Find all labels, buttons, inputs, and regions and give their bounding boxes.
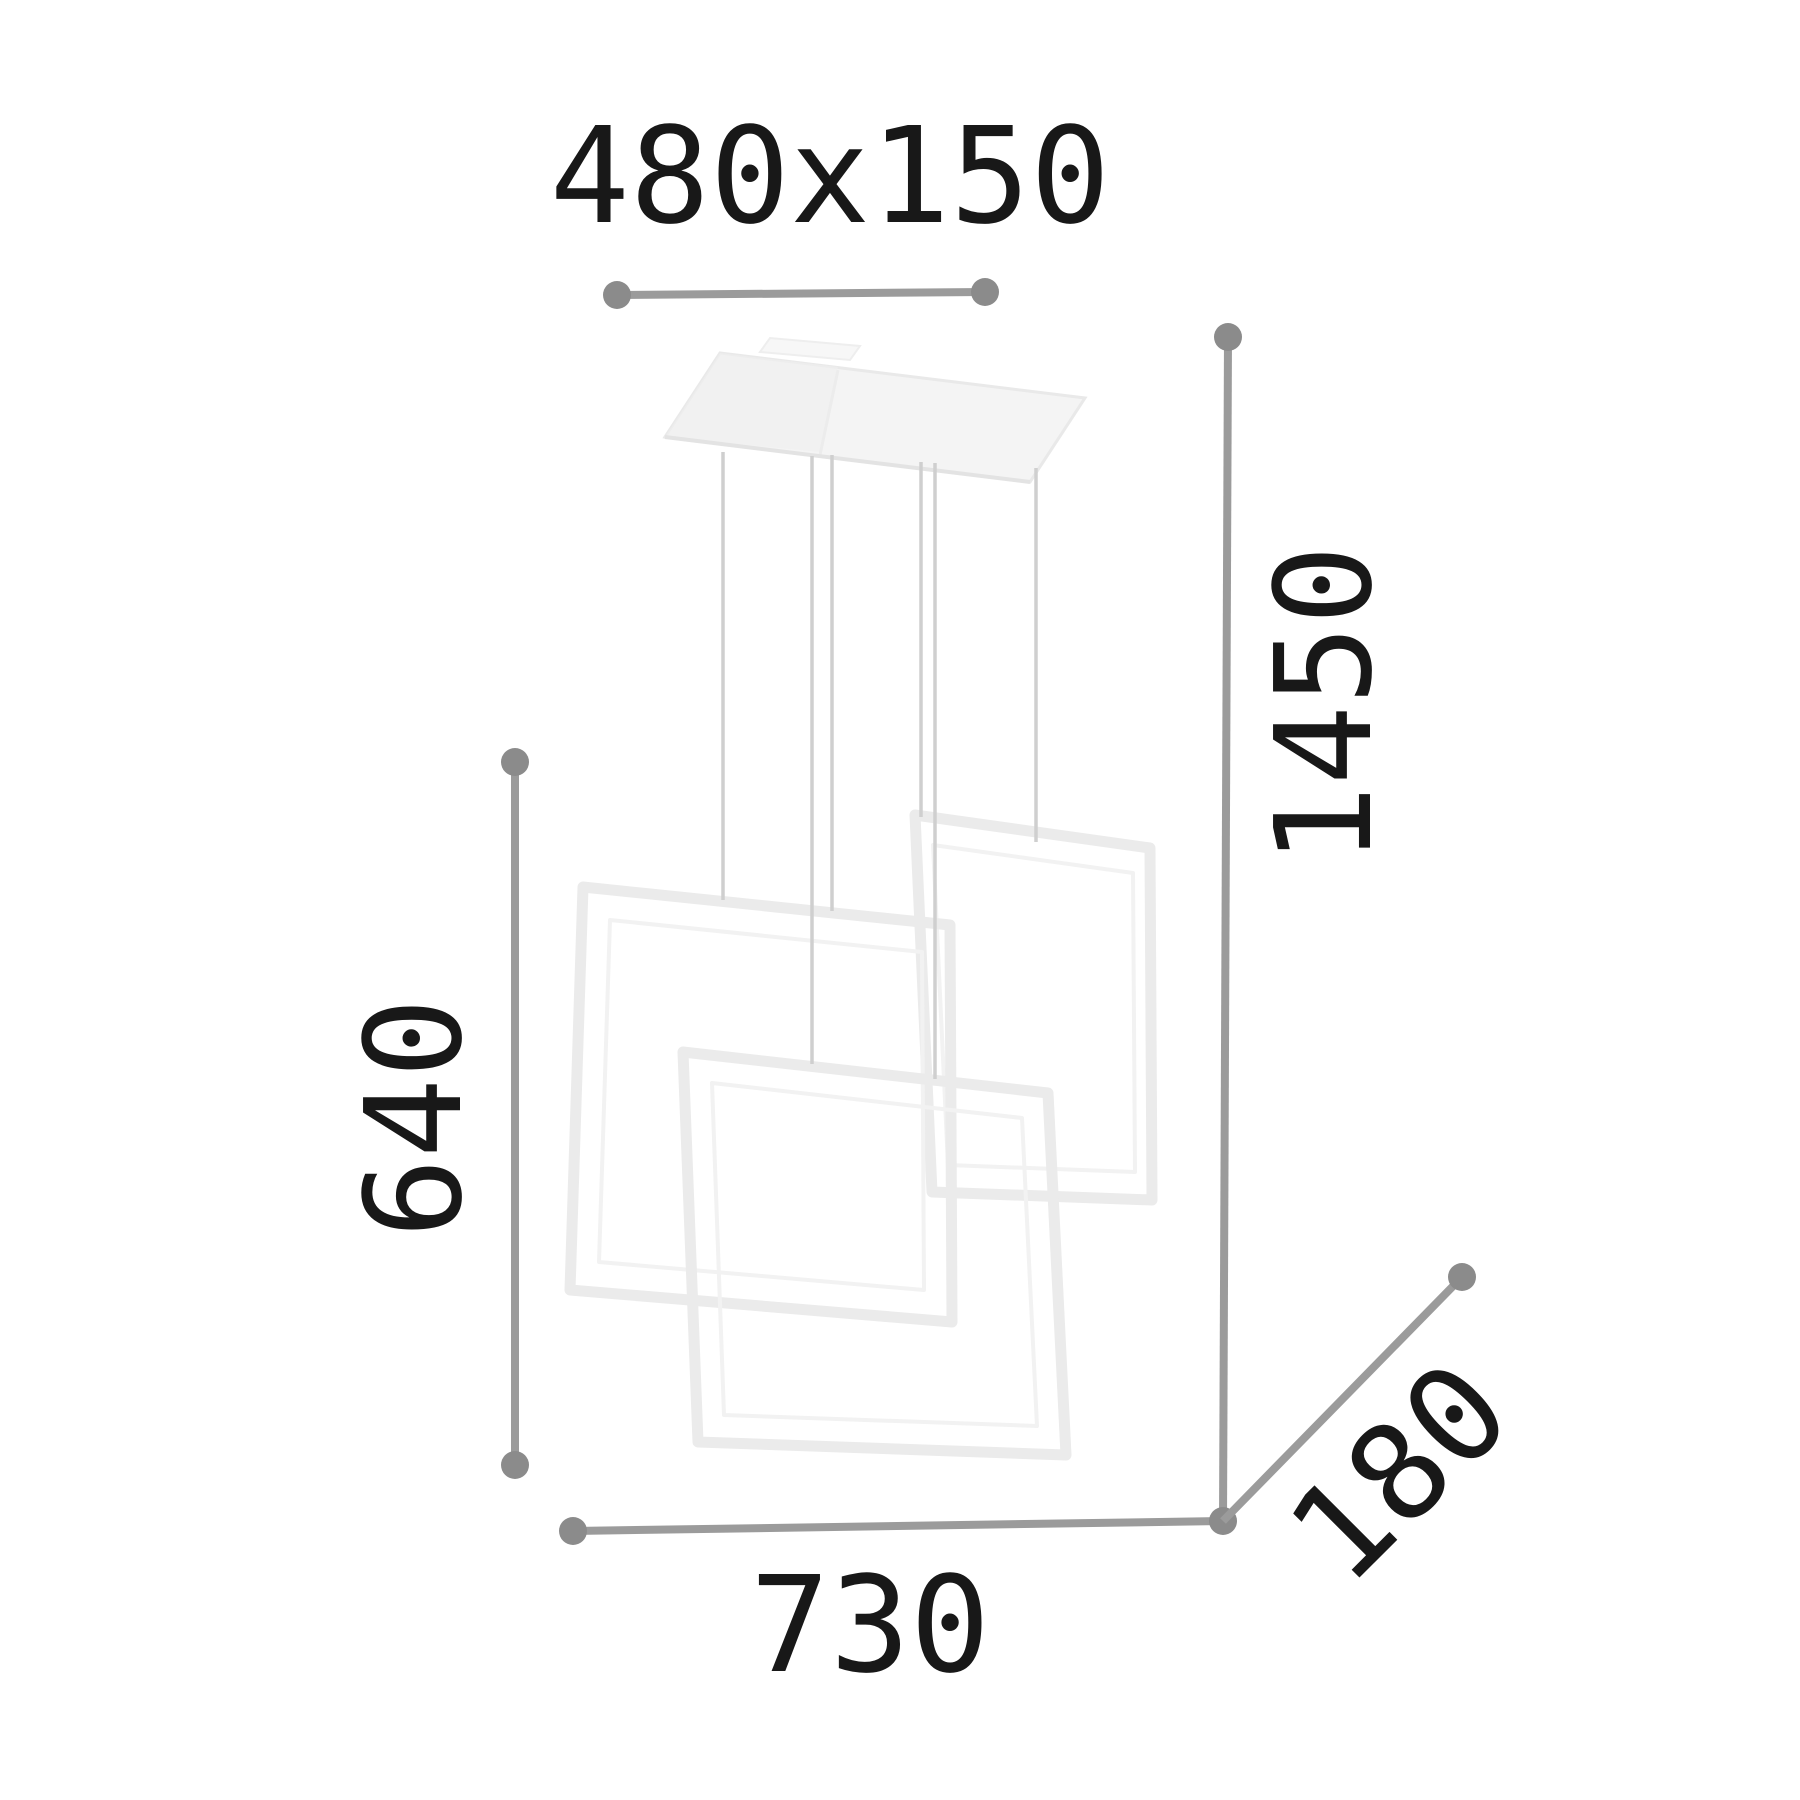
suspension-wires	[723, 452, 1036, 1079]
dimension-endpoint-dot	[501, 1451, 529, 1479]
diagram-canvas: 480x150 1450 640 730	[0, 0, 1800, 1800]
dimension-endpoint-dot	[501, 748, 529, 776]
total-height-dimension-label: 1450	[1248, 545, 1402, 865]
dimension-total-height: 1450	[1214, 323, 1402, 1521]
canopy-shade	[665, 353, 838, 452]
square-frame-middle-inner	[599, 920, 924, 1290]
square-frame-front-outer	[683, 1052, 1066, 1455]
dimension-depth: 180	[1223, 1263, 1540, 1613]
width-dimension-line	[573, 1521, 1223, 1531]
dimension-endpoint-dot	[1214, 323, 1242, 351]
square-frame-back-inner	[933, 845, 1135, 1172]
dimension-endpoint-dot	[971, 278, 999, 306]
canopy-dimension-label: 480x150	[550, 100, 1111, 254]
depth-dimension-label: 180	[1261, 1334, 1540, 1613]
dimension-fixture-height: 640	[338, 748, 529, 1479]
mounting-bracket	[760, 338, 860, 360]
lamp-drawing	[570, 338, 1152, 1455]
dimension-endpoint-dot	[559, 1517, 587, 1545]
dimension-canopy: 480x150	[550, 100, 1111, 309]
dimension-endpoint-dot	[1448, 1263, 1476, 1291]
dimension-width: 730	[559, 1507, 1237, 1703]
square-frame-front-inner	[712, 1083, 1037, 1426]
dimension-diagram: 480x150 1450 640 730	[0, 0, 1800, 1800]
total-height-dimension-line	[1223, 337, 1228, 1521]
square-frame-front	[683, 1052, 1066, 1455]
canopy-dimension-line	[617, 292, 985, 295]
ceiling-canopy	[665, 338, 1085, 482]
dimension-endpoint-dot	[603, 281, 631, 309]
fixture-height-dimension-label: 640	[338, 998, 492, 1238]
dimension-annotations: 480x150 1450 640 730	[338, 100, 1540, 1703]
width-dimension-label: 730	[750, 1549, 990, 1703]
